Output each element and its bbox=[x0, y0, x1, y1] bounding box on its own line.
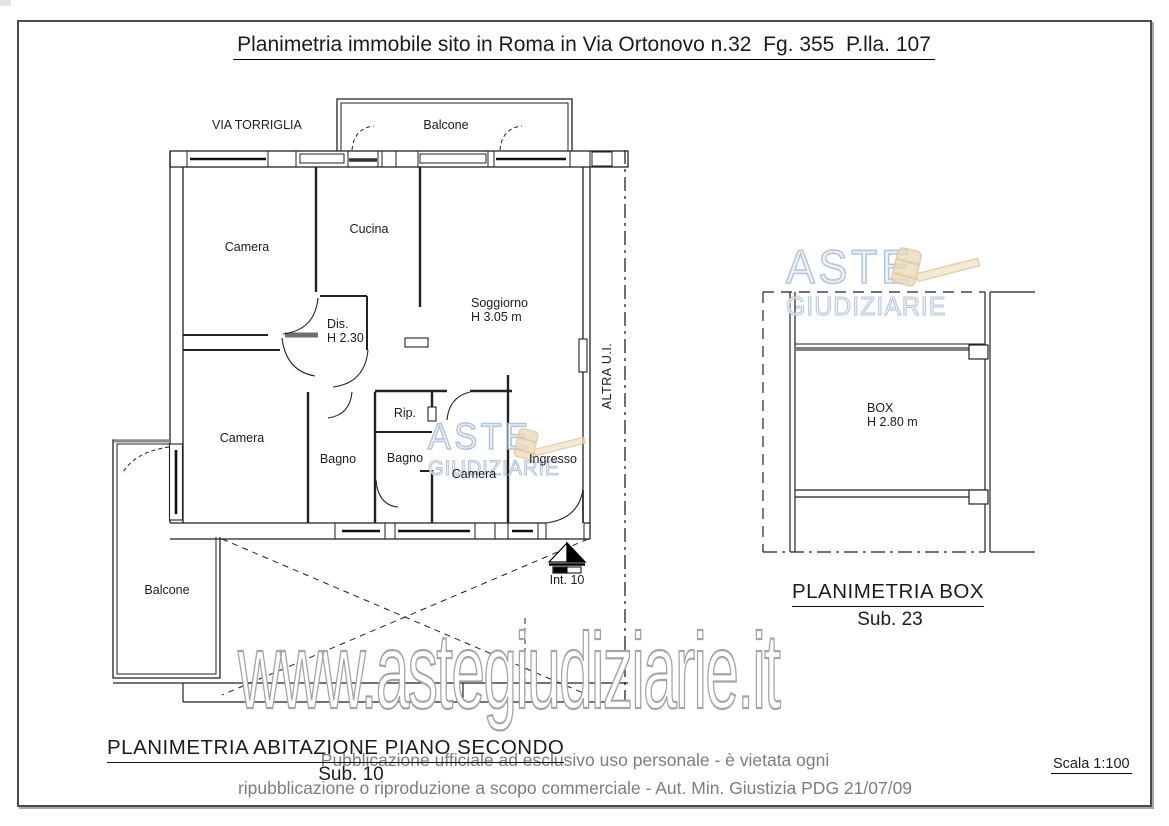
floor-plan-sheet: ASTE GIUDIZIARIE ASTE GIUDIZIARIE www.as… bbox=[0, 0, 1169, 826]
apartment-plan-sub-label: Sub. 10 bbox=[318, 764, 384, 786]
document-title: Planimetria immobile sito in Roma in Via… bbox=[233, 33, 935, 60]
adjacent-unit-label: ALTRA U.I. bbox=[600, 332, 614, 420]
room-label-balcone-top: Balcone bbox=[423, 118, 468, 132]
room-label-camera-small: Camera bbox=[452, 467, 496, 481]
top-wall-windows bbox=[170, 126, 628, 167]
room-label-camera-mid: Camera bbox=[220, 431, 264, 445]
room-label-bagno-2: Bagno bbox=[387, 451, 423, 465]
box-plan-sub-label: Sub. 23 bbox=[857, 609, 923, 631]
room-label-ingresso: Ingresso bbox=[529, 452, 577, 466]
astegiudiziarie-logo-watermark-right: ASTE GIUDIZIARIE bbox=[786, 243, 953, 319]
left-balcony-outline bbox=[113, 440, 220, 678]
street-label: VIA TORRIGLIA bbox=[212, 118, 302, 132]
box-plan-caption: PLANIMETRIA BOX bbox=[792, 580, 984, 607]
disclaimer-line-2: ripubblicazione o riproduzione a scopo c… bbox=[0, 774, 1150, 802]
room-label-camera-top: Camera bbox=[225, 240, 269, 254]
room-label-cucina: Cucina bbox=[350, 222, 389, 236]
room-label-box: BOX H 2.80 m bbox=[867, 402, 918, 429]
room-label-bagno-1: Bagno bbox=[320, 452, 356, 466]
gavel-icon bbox=[882, 245, 990, 301]
scale-label: Scala 1:100 bbox=[1051, 756, 1132, 774]
left-wall bbox=[122, 151, 183, 523]
apartment-plan-caption: PLANIMETRIA ABITAZIONE PIANO SECONDO bbox=[107, 736, 564, 763]
entrance-arrow-icon bbox=[549, 543, 585, 573]
astegiudiziarie-logo-watermark-center: ASTE GIUDIZIARIE bbox=[428, 418, 565, 479]
room-label-soggiorno: Soggiorno H 3.05 m bbox=[471, 297, 528, 324]
room-label-balcone-left: Balcone bbox=[144, 583, 189, 597]
room-label-dis: Dis. H 2.30 bbox=[327, 318, 364, 345]
bottom-wall-windows bbox=[170, 490, 590, 539]
room-label-rip: Rip. bbox=[394, 406, 416, 420]
entrance-number-label: Int. 10 bbox=[550, 573, 585, 587]
website-watermark: www.astegiudiziarie.it bbox=[238, 608, 779, 733]
